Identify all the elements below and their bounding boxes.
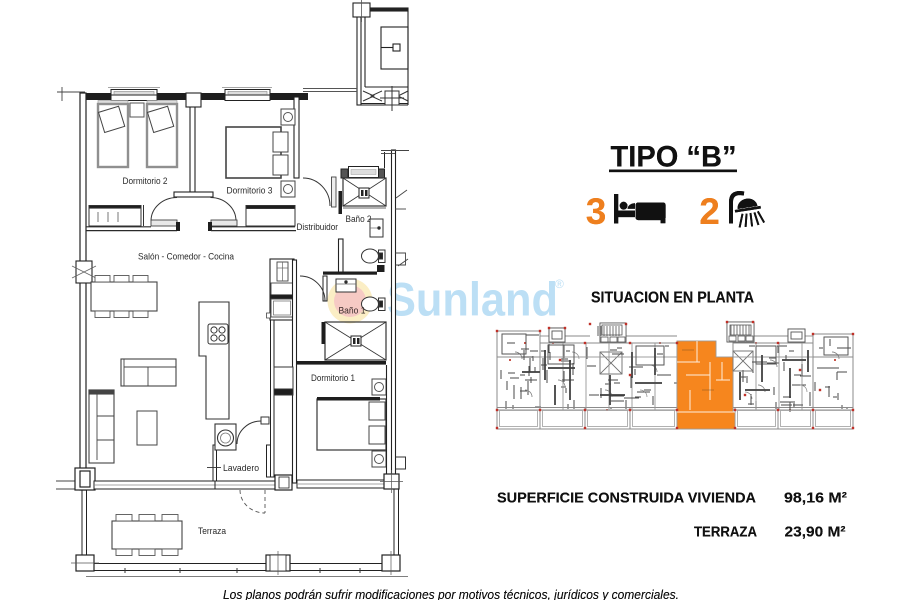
svg-text:Dormitorio 2: Dormitorio 2 — [123, 176, 168, 186]
svg-text:Sunland: Sunland — [387, 273, 558, 326]
svg-text:Distribuidor: Distribuidor — [297, 222, 339, 232]
svg-text:Dormitorio 1: Dormitorio 1 — [311, 373, 355, 383]
svg-text:2: 2 — [699, 191, 720, 232]
svg-text:Lavadero: Lavadero — [223, 463, 259, 473]
svg-text:SUPERFICIE CONSTRUIDA VIVIENDA: SUPERFICIE CONSTRUIDA VIVIENDA — [497, 490, 756, 507]
svg-text:3: 3 — [586, 191, 607, 232]
svg-text:Salón - Comedor - Cocina: Salón - Comedor - Cocina — [138, 252, 234, 262]
svg-text:®: ® — [555, 277, 564, 291]
svg-text:23,90 M²: 23,90 M² — [785, 524, 846, 541]
svg-text:TERRAZA: TERRAZA — [694, 524, 757, 541]
svg-text:TIPO “B”: TIPO “B” — [611, 141, 737, 174]
svg-text:Baño 1: Baño 1 — [339, 306, 366, 316]
svg-text:98,16 M²: 98,16 M² — [784, 490, 847, 507]
svg-text:Baño 2: Baño 2 — [346, 214, 372, 224]
svg-text:Dormitorio 3: Dormitorio 3 — [227, 186, 273, 196]
svg-text:SITUACION EN PLANTA: SITUACION EN PLANTA — [591, 290, 754, 307]
svg-text:Los planos podrán sufrir modif: Los planos podrán sufrir modificaciones … — [223, 588, 679, 600]
svg-text:Terraza: Terraza — [198, 526, 226, 536]
